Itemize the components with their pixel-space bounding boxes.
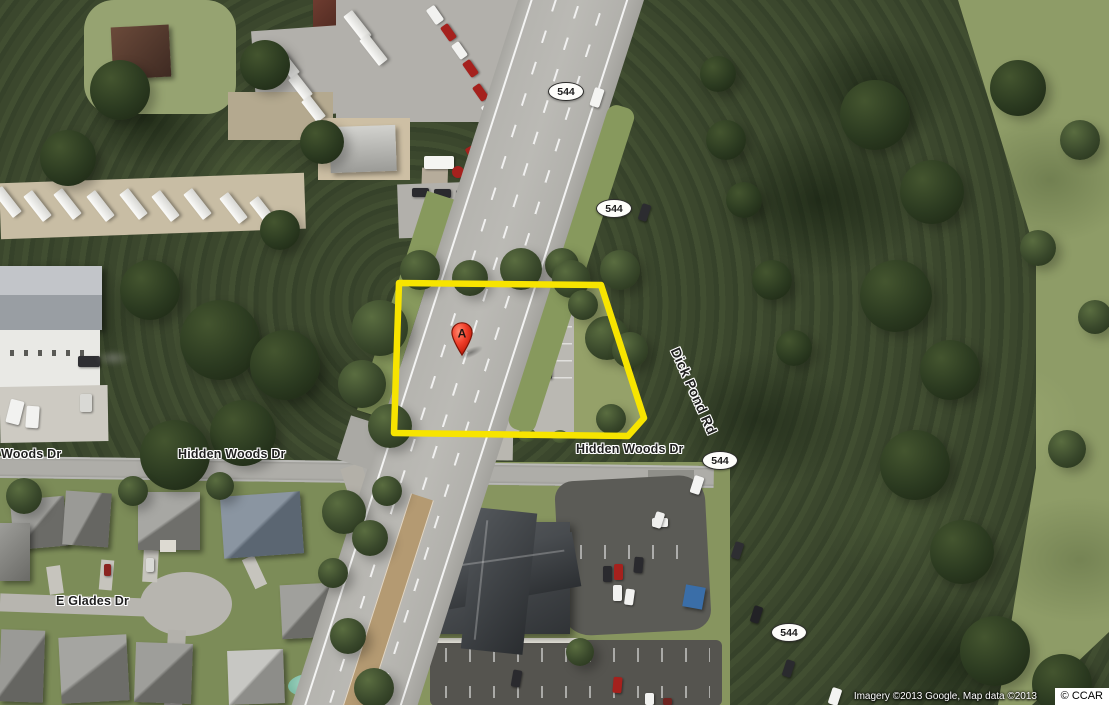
tree [930, 520, 994, 584]
tree [840, 80, 910, 150]
car [603, 566, 612, 582]
tree [568, 290, 598, 320]
window [24, 350, 28, 356]
tree [900, 160, 964, 224]
window [52, 350, 56, 356]
tree [1060, 120, 1100, 160]
route-shield-544: 544 [771, 623, 807, 642]
tree [338, 360, 386, 408]
tree [752, 260, 792, 300]
tree [206, 472, 234, 500]
building-warehouse [0, 266, 102, 330]
road-label-woods-dr: Woods Dr [1, 447, 61, 461]
tree [90, 60, 150, 120]
tree [960, 616, 1030, 686]
window [10, 350, 14, 356]
tree [612, 332, 648, 368]
tree [180, 300, 260, 380]
tree [6, 478, 42, 514]
tree [40, 130, 96, 186]
window [66, 350, 70, 356]
ccar-attribution: © CCAR [1055, 688, 1109, 705]
car [663, 698, 672, 705]
bush [552, 430, 568, 443]
tree [706, 120, 746, 160]
window [38, 350, 42, 356]
tree [120, 260, 180, 320]
car [645, 693, 654, 705]
car [633, 557, 643, 574]
car [146, 558, 154, 572]
tree [1048, 430, 1086, 468]
route-shield-544: 544 [702, 451, 738, 470]
tree [452, 260, 488, 296]
tree [1078, 300, 1109, 334]
parking-stripes [445, 686, 710, 698]
tree [596, 404, 626, 434]
tree [250, 330, 320, 400]
building-house [160, 540, 176, 552]
building-house [62, 490, 112, 547]
building-house [0, 523, 30, 581]
tree [300, 120, 344, 164]
tree [990, 60, 1046, 116]
tree [352, 520, 388, 556]
tree [880, 430, 950, 500]
tree [354, 668, 394, 705]
tree [368, 404, 412, 448]
tree [372, 476, 402, 506]
building-house [58, 634, 129, 703]
car [613, 585, 622, 601]
tree [566, 638, 594, 666]
tree [600, 250, 640, 290]
tree [776, 330, 812, 366]
tree [860, 260, 932, 332]
tree [318, 558, 348, 588]
tree [352, 300, 408, 356]
dumpster [682, 584, 706, 609]
tree [920, 340, 980, 400]
tree [118, 476, 148, 506]
tree [400, 250, 440, 290]
road-label-e-glades-dr: E Glades Dr [56, 594, 129, 608]
tree [700, 56, 736, 92]
car [80, 394, 92, 412]
building-house [0, 629, 45, 702]
marker-a[interactable]: A [451, 322, 473, 356]
tree [726, 182, 762, 218]
tree [1020, 230, 1056, 266]
building-house [220, 491, 304, 558]
satellite-map[interactable]: A 544 544 544 544 Dick Pond Rd Hidden Wo… [0, 0, 1109, 705]
smoke [96, 350, 130, 366]
marker-label: A [458, 327, 467, 341]
road-label-hidden-woods-dr: Hidden Woods Dr [178, 447, 286, 461]
building-house [134, 642, 193, 704]
building-house [227, 649, 285, 705]
car [612, 677, 622, 694]
tree [260, 210, 300, 250]
tree [500, 248, 542, 290]
imagery-attribution: Imagery ©2013 Google, Map data ©2013 [854, 691, 1037, 702]
route-shield-544: 544 [596, 199, 632, 218]
car [424, 156, 454, 169]
car [614, 564, 623, 580]
car [104, 564, 111, 576]
car [25, 406, 40, 429]
tree [240, 40, 290, 90]
tree [330, 618, 366, 654]
road-label-hidden-woods-dr: Hidden Woods Dr [576, 442, 684, 456]
route-shield-544: 544 [548, 82, 584, 101]
